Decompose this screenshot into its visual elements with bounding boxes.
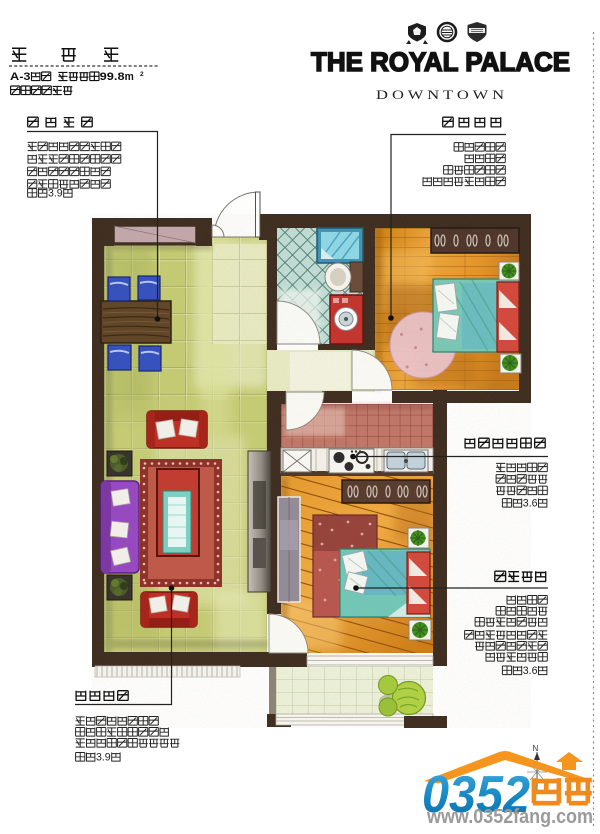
svg-text:99.8: 99.8	[100, 71, 125, 83]
svg-text:www.0352fang.com: www.0352fang.com	[426, 806, 593, 828]
svg-text:D O W N T O W N: D O W N T O W N	[376, 87, 505, 102]
svg-text:A-3: A-3	[10, 71, 31, 83]
svg-text:THE ROYAL PALACE: THE ROYAL PALACE	[311, 47, 570, 77]
svg-text:m: m	[125, 71, 134, 83]
svg-text:3.9: 3.9	[96, 751, 111, 763]
svg-text:3.9: 3.9	[48, 187, 63, 199]
svg-text:N: N	[533, 744, 539, 753]
svg-text:3.6: 3.6	[523, 665, 538, 677]
svg-text:2: 2	[140, 71, 144, 78]
svg-text:3.6: 3.6	[523, 497, 538, 509]
